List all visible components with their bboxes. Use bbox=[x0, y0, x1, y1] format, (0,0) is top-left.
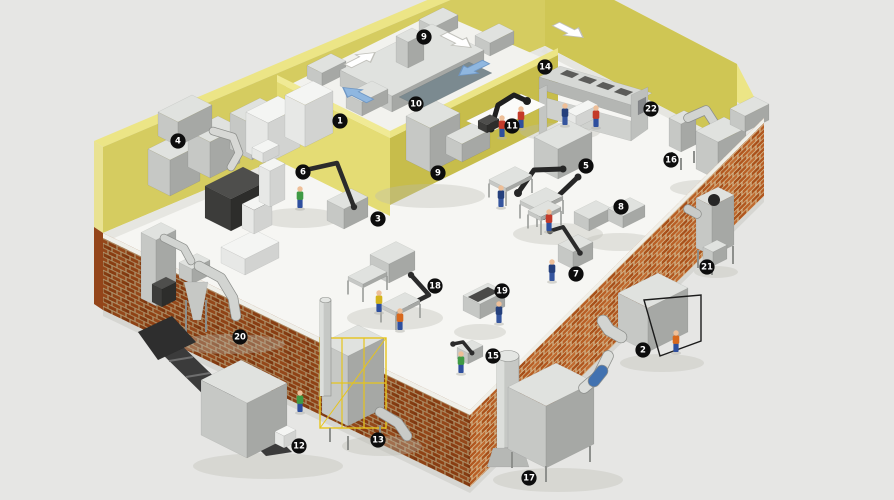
svg-text:6: 6 bbox=[300, 168, 306, 178]
svg-text:7: 7 bbox=[573, 270, 579, 280]
svg-text:20: 20 bbox=[234, 333, 246, 343]
svg-text:18: 18 bbox=[429, 282, 441, 292]
svg-text:16: 16 bbox=[665, 156, 677, 166]
svg-text:3: 3 bbox=[375, 215, 381, 225]
svg-text:17: 17 bbox=[523, 474, 535, 484]
marker-badge: 9 bbox=[430, 165, 445, 180]
svg-text:8: 8 bbox=[618, 203, 624, 213]
svg-text:22: 22 bbox=[645, 105, 657, 115]
svg-text:12: 12 bbox=[293, 442, 305, 452]
marker-badge: 7 bbox=[568, 266, 583, 281]
marker-badge: 19 bbox=[494, 283, 509, 298]
marker-badge: 6 bbox=[295, 164, 310, 179]
factory-illustration: 123456789910111213141516171819202122 bbox=[0, 0, 894, 500]
marker-badge: 13 bbox=[370, 432, 385, 447]
marker-badge: 4 bbox=[170, 133, 185, 148]
svg-text:15: 15 bbox=[487, 352, 499, 362]
svg-text:1: 1 bbox=[337, 117, 343, 127]
factory-scene-canvas: 123456789910111213141516171819202122 bbox=[0, 0, 894, 500]
west-wall-cap bbox=[94, 141, 103, 233]
svg-text:11: 11 bbox=[506, 122, 518, 132]
marker-badge: 3 bbox=[370, 211, 385, 226]
marker-badge: 21 bbox=[699, 259, 714, 274]
svg-text:21: 21 bbox=[701, 263, 713, 273]
marker-badge: 22 bbox=[643, 101, 658, 116]
collector-stub bbox=[688, 209, 697, 214]
west-wall-cap-brick bbox=[94, 227, 103, 310]
marker-badge: 16 bbox=[663, 152, 678, 167]
marker-badge: 20 bbox=[232, 329, 247, 344]
marker-badge: 9 bbox=[416, 29, 431, 44]
marker-badge: 2 bbox=[635, 342, 650, 357]
marker-badge: 10 bbox=[408, 96, 423, 111]
svg-text:2: 2 bbox=[640, 346, 646, 356]
marker-badge: 5 bbox=[578, 158, 593, 173]
exhaust-stack bbox=[320, 297, 331, 396]
fume-bench-post bbox=[539, 85, 547, 134]
collector-motor bbox=[708, 194, 720, 206]
marker-badge: 17 bbox=[521, 470, 536, 485]
marker-badge: 1 bbox=[332, 113, 347, 128]
marker-badge: 15 bbox=[485, 348, 500, 363]
marker-badge: 11 bbox=[504, 118, 519, 133]
svg-text:9: 9 bbox=[421, 33, 427, 43]
svg-text:5: 5 bbox=[583, 162, 589, 172]
svg-text:14: 14 bbox=[539, 63, 551, 73]
svg-text:9: 9 bbox=[435, 169, 441, 179]
duct-coupler bbox=[594, 371, 602, 381]
marker-badge: 14 bbox=[537, 59, 552, 74]
marker-badge: 18 bbox=[427, 278, 442, 293]
svg-text:19: 19 bbox=[496, 287, 508, 297]
tall-cabinet bbox=[259, 158, 285, 207]
svg-text:10: 10 bbox=[410, 100, 422, 110]
marker-badge: 8 bbox=[613, 199, 628, 214]
svg-text:13: 13 bbox=[372, 436, 384, 446]
svg-text:4: 4 bbox=[175, 137, 181, 147]
marker-badge: 12 bbox=[291, 438, 306, 453]
